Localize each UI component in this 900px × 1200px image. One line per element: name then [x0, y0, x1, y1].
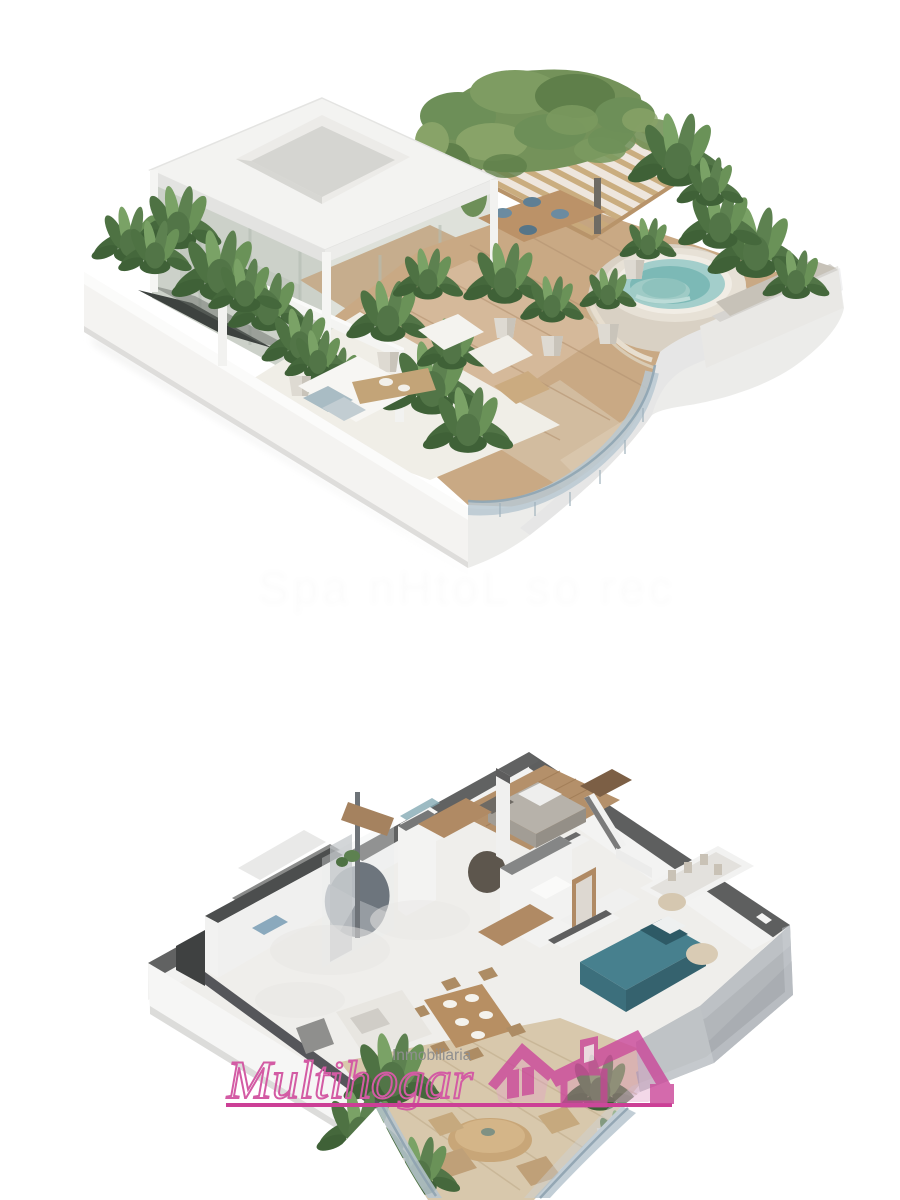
svg-text:Spa nHtoL so rec: Spa nHtoL so rec — [258, 562, 676, 614]
svg-text:Multihogar: Multihogar — [226, 1050, 474, 1110]
